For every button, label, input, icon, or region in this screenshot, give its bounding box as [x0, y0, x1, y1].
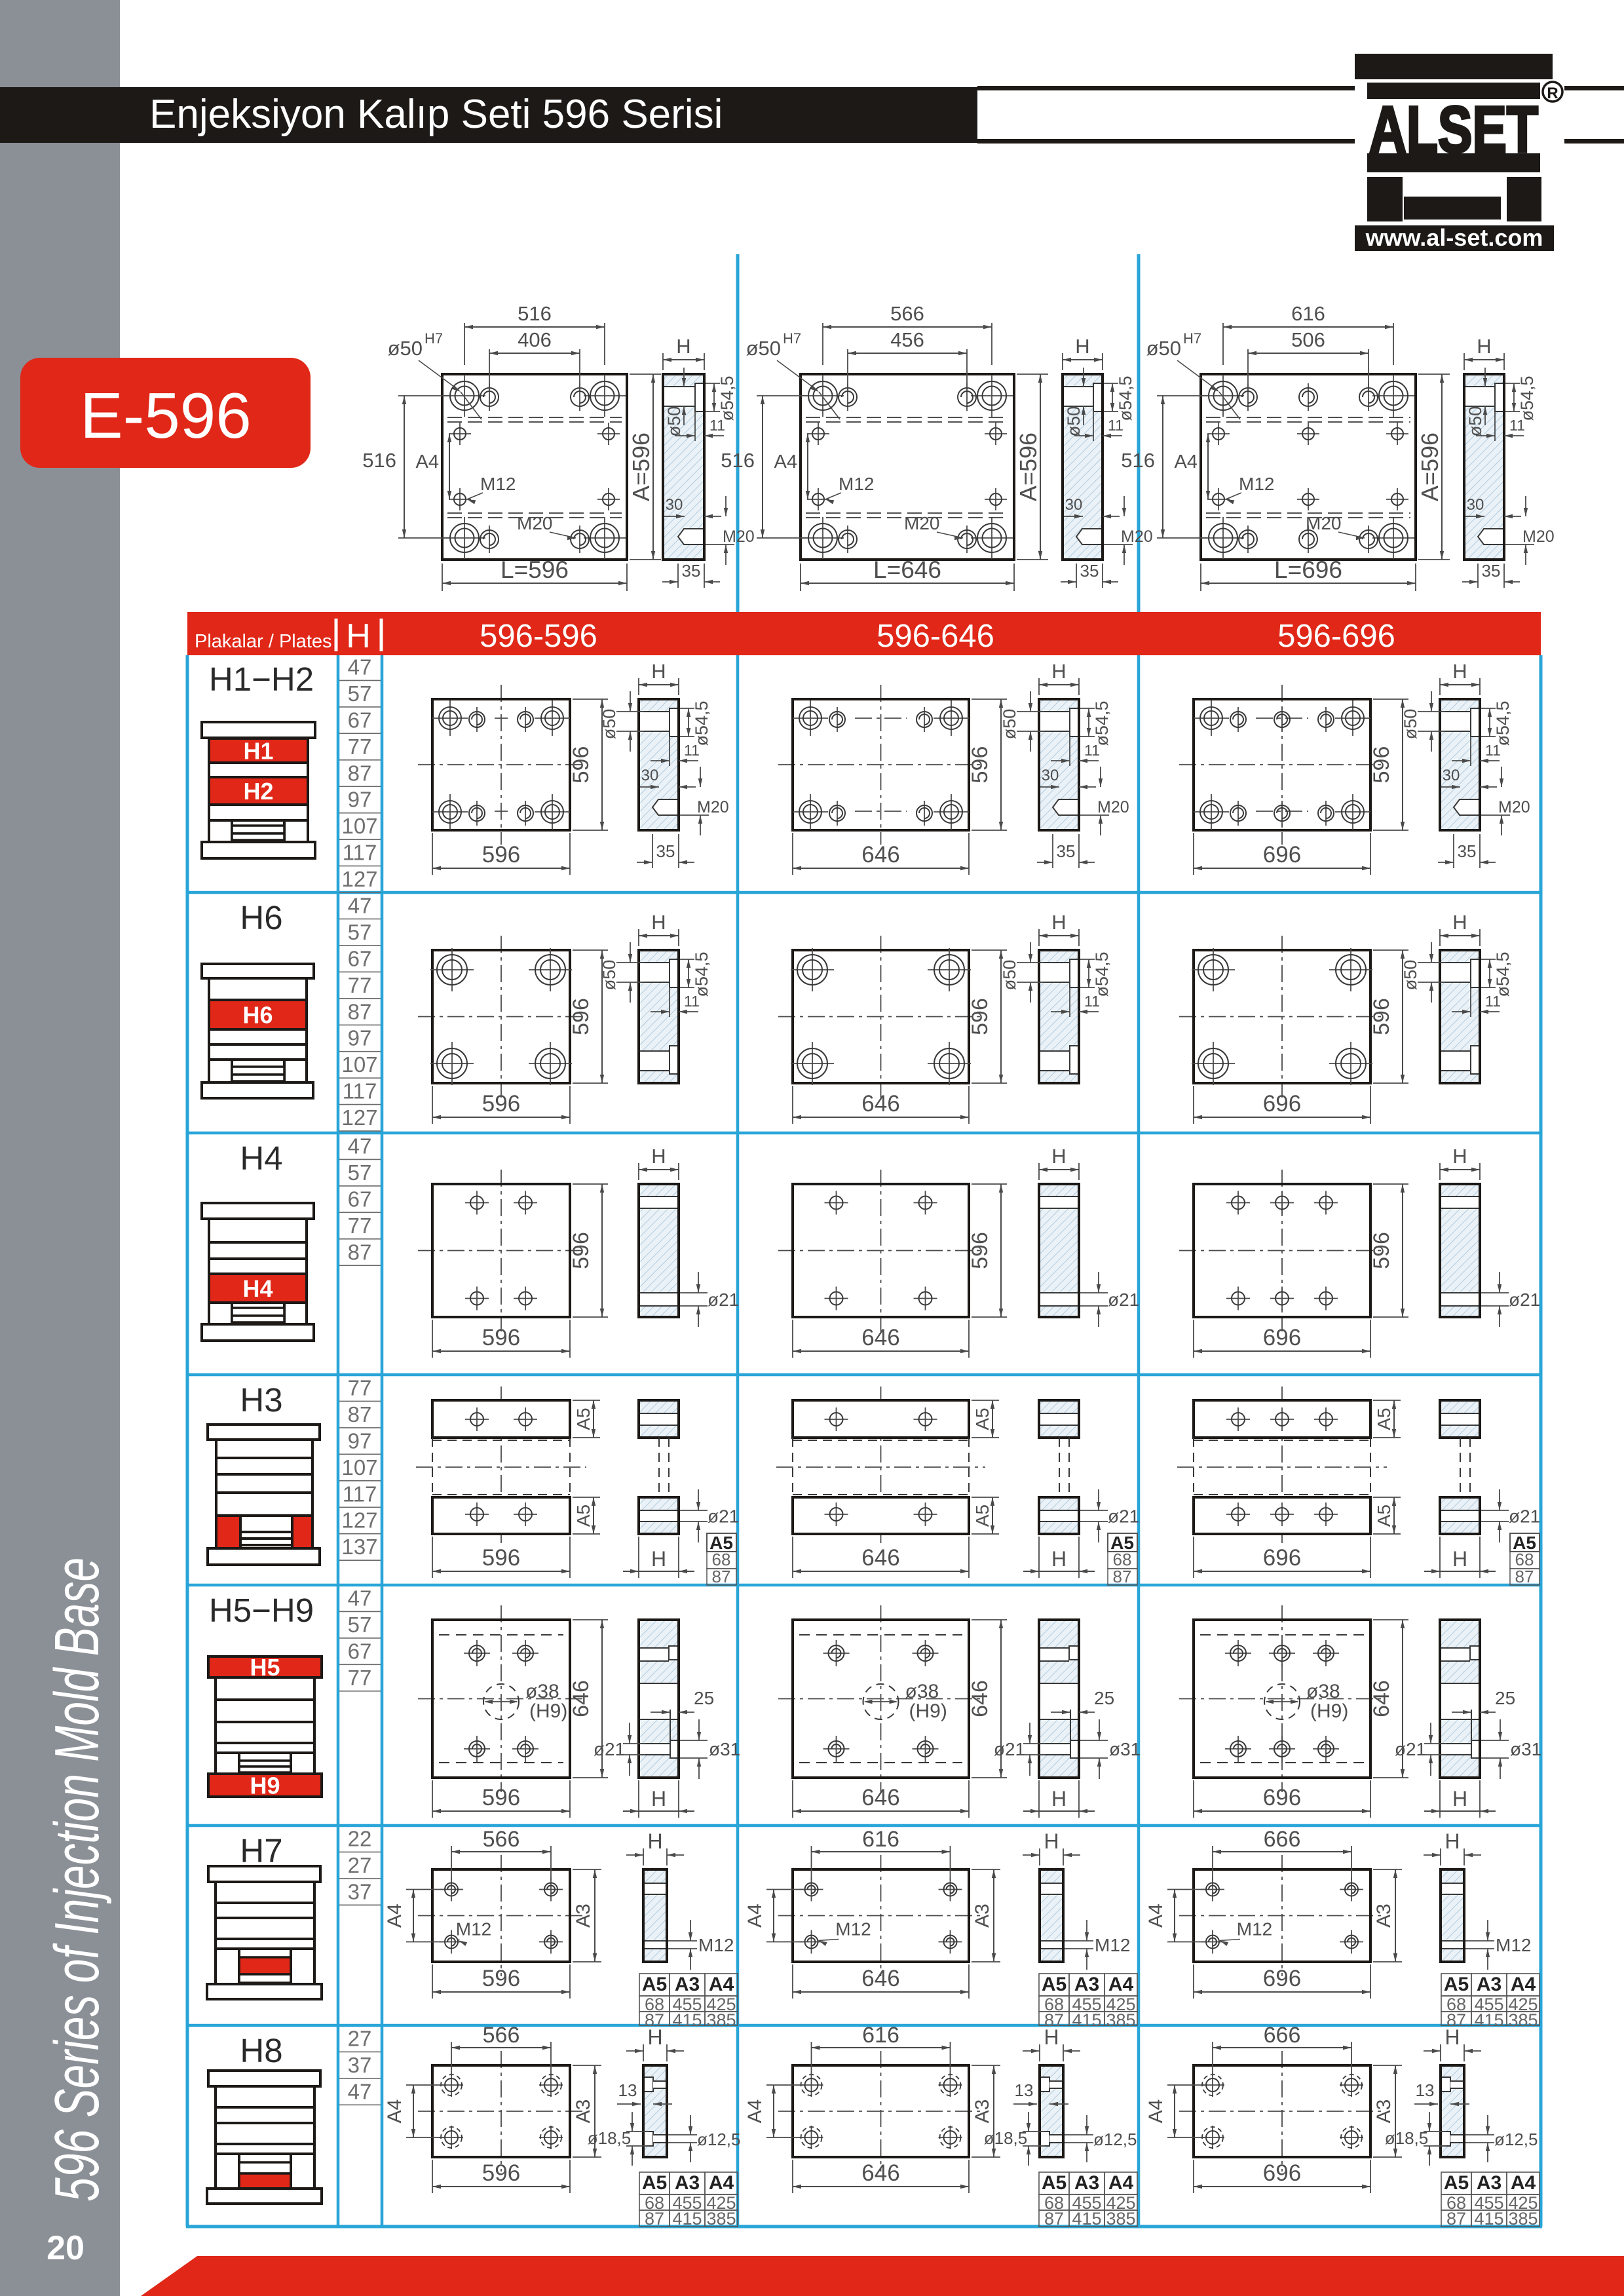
svg-text:M20: M20	[904, 513, 939, 533]
svg-text:M20: M20	[1306, 513, 1341, 533]
svg-text:H: H	[1452, 1787, 1467, 1810]
svg-text:ø18,5: ø18,5	[588, 2128, 632, 2148]
svg-text:646: 646	[861, 1091, 899, 1117]
svg-text:ø18,5: ø18,5	[984, 2128, 1028, 2148]
svg-text:H: H	[346, 617, 371, 655]
svg-text:97: 97	[348, 788, 372, 812]
svg-text:A5: A5	[1444, 2172, 1469, 2194]
svg-text:117: 117	[343, 1482, 377, 1506]
svg-text:ø21: ø21	[708, 1506, 739, 1527]
svg-text:415: 415	[1474, 2010, 1503, 2030]
svg-text:87: 87	[348, 1402, 372, 1426]
svg-text:77: 77	[348, 1375, 372, 1400]
svg-text:646: 646	[861, 2160, 899, 2186]
svg-text:47: 47	[348, 1134, 372, 1158]
svg-text:A5: A5	[972, 1407, 992, 1430]
svg-text:107: 107	[341, 1052, 377, 1077]
svg-text:596-696: 596-696	[1277, 619, 1395, 654]
svg-text:47: 47	[348, 2079, 372, 2103]
svg-text:ø21: ø21	[594, 1739, 625, 1759]
svg-text:596-596: 596-596	[480, 619, 597, 654]
svg-text:H: H	[647, 1829, 662, 1853]
svg-text:37: 37	[348, 1879, 372, 1904]
svg-text:506: 506	[1291, 328, 1325, 351]
svg-text:ø50: ø50	[1000, 960, 1019, 991]
svg-text:35: 35	[1482, 561, 1501, 581]
svg-text:H4: H4	[242, 1275, 273, 1302]
svg-text:M12: M12	[1496, 1935, 1531, 1955]
svg-text:A3: A3	[573, 2099, 594, 2124]
svg-text:ø50: ø50	[1401, 960, 1420, 991]
svg-text:H3: H3	[240, 1381, 282, 1419]
svg-text:11: 11	[1108, 417, 1124, 434]
svg-text:Plakalar / Plates: Plakalar / Plates	[195, 631, 332, 652]
svg-text:47: 47	[348, 1586, 372, 1610]
svg-text:ø38: ø38	[905, 1681, 939, 1702]
svg-text:25: 25	[1094, 1688, 1114, 1708]
svg-text:ø31: ø31	[1109, 1739, 1141, 1759]
svg-text:ø31: ø31	[709, 1739, 740, 1759]
svg-text:ø50: ø50	[1000, 709, 1019, 740]
svg-text:696: 696	[1263, 2160, 1301, 2186]
svg-text:ø50: ø50	[746, 337, 781, 360]
svg-text:67: 67	[348, 708, 372, 732]
svg-text:H: H	[1044, 1829, 1059, 1853]
svg-text:35: 35	[1458, 841, 1477, 861]
svg-text:596: 596	[569, 998, 594, 1035]
svg-text:566: 566	[483, 2023, 520, 2048]
svg-text:646: 646	[861, 842, 899, 868]
svg-text:A4: A4	[416, 451, 439, 472]
svg-text:ø54,5: ø54,5	[717, 375, 737, 421]
svg-text:H: H	[1477, 335, 1491, 358]
svg-text:A3: A3	[1074, 2172, 1099, 2194]
svg-text:516: 516	[1121, 449, 1155, 472]
svg-text:L=596: L=596	[500, 556, 569, 583]
svg-text:596: 596	[1369, 998, 1394, 1035]
svg-text:A3: A3	[1373, 2099, 1395, 2124]
svg-text:107: 107	[341, 1455, 377, 1480]
svg-text:57: 57	[348, 1160, 372, 1185]
svg-text:30: 30	[1042, 767, 1059, 784]
svg-text:Enjeksiyon Kalıp Seti 596 Seri: Enjeksiyon Kalıp Seti 596 Serisi	[149, 92, 723, 137]
svg-text:A4: A4	[774, 451, 797, 472]
svg-text:596: 596	[482, 842, 520, 868]
svg-text:A5: A5	[1374, 1407, 1394, 1430]
svg-text:596: 596	[1369, 746, 1394, 784]
svg-text:ø50: ø50	[388, 337, 423, 360]
svg-text:97: 97	[348, 1428, 372, 1453]
svg-text:385: 385	[706, 2010, 736, 2030]
svg-text:ø21: ø21	[1509, 1506, 1540, 1527]
svg-text:696: 696	[1263, 842, 1301, 868]
svg-text:57: 57	[348, 681, 372, 706]
svg-text:596: 596	[569, 746, 594, 784]
svg-text:M12: M12	[698, 1935, 734, 1955]
svg-text:H: H	[1051, 911, 1066, 934]
svg-text:H: H	[651, 1145, 666, 1168]
svg-text:35: 35	[682, 561, 701, 581]
svg-text:H: H	[1075, 335, 1089, 358]
svg-text:ø54,5: ø54,5	[1493, 700, 1513, 746]
svg-text:A4: A4	[709, 1974, 734, 1995]
svg-text:M12: M12	[1239, 474, 1274, 494]
svg-text:77: 77	[348, 973, 372, 997]
svg-text:456: 456	[890, 328, 924, 351]
svg-text:596: 596	[482, 2160, 520, 2186]
svg-text:ø21: ø21	[1108, 1290, 1139, 1310]
svg-text:M12: M12	[835, 1919, 871, 1940]
svg-text:ø54,5: ø54,5	[692, 700, 711, 746]
svg-text:A4: A4	[1145, 1904, 1167, 1928]
svg-text:E-596: E-596	[80, 379, 252, 451]
svg-text:415: 415	[1072, 2209, 1101, 2229]
svg-text:H6: H6	[242, 1002, 273, 1029]
svg-text:ø21: ø21	[1108, 1506, 1139, 1527]
svg-text:666: 666	[1264, 2023, 1301, 2048]
svg-text:ø54,5: ø54,5	[1493, 951, 1513, 997]
svg-text:A4: A4	[709, 2172, 734, 2194]
svg-text:ø54,5: ø54,5	[692, 951, 711, 997]
svg-text:ø12,5: ø12,5	[1494, 2130, 1538, 2149]
svg-text:H: H	[651, 1547, 666, 1571]
svg-text:M20: M20	[1498, 798, 1530, 816]
svg-text:415: 415	[1474, 2209, 1503, 2229]
svg-text:M12: M12	[1237, 1919, 1272, 1940]
svg-text:646: 646	[861, 1545, 899, 1571]
svg-text:A3: A3	[972, 1904, 993, 1928]
svg-text:A5: A5	[972, 1504, 992, 1527]
svg-text:415: 415	[672, 2209, 702, 2229]
svg-text:13: 13	[1416, 2080, 1435, 2100]
svg-text:H: H	[1051, 1145, 1066, 1168]
svg-text:37: 37	[348, 2053, 372, 2077]
svg-text:H8: H8	[240, 2032, 282, 2069]
svg-text:666: 666	[1264, 1827, 1301, 1852]
svg-text:117: 117	[343, 841, 377, 865]
svg-text:(H9): (H9)	[1310, 1700, 1348, 1722]
svg-text:H7: H7	[240, 1832, 282, 1869]
svg-text:A5: A5	[1042, 2172, 1067, 2194]
svg-text:L=696: L=696	[1274, 556, 1342, 583]
svg-text:ø54,5: ø54,5	[1092, 700, 1112, 746]
svg-text:A4: A4	[744, 2099, 766, 2124]
svg-text:47: 47	[348, 893, 372, 917]
svg-text:30: 30	[1467, 496, 1484, 514]
svg-text:H2: H2	[243, 778, 273, 805]
svg-text:87: 87	[1113, 1567, 1132, 1586]
svg-text:77: 77	[348, 735, 372, 759]
svg-text:A5: A5	[1042, 1974, 1067, 1995]
svg-text:H: H	[1051, 1787, 1067, 1810]
svg-text:107: 107	[341, 814, 377, 838]
svg-text:H7: H7	[783, 330, 801, 347]
svg-text:H: H	[651, 660, 666, 683]
svg-text:H: H	[651, 1787, 666, 1810]
svg-text:ø54,5: ø54,5	[1116, 375, 1135, 421]
svg-text:A4: A4	[1108, 2172, 1134, 2194]
svg-text:67: 67	[348, 946, 372, 970]
svg-text:A4: A4	[744, 1904, 766, 1928]
svg-text:ø50: ø50	[599, 960, 619, 991]
svg-text:385: 385	[1508, 2010, 1538, 2030]
svg-text:11: 11	[1084, 742, 1100, 759]
svg-text:35: 35	[1080, 561, 1099, 581]
svg-text:385: 385	[1106, 2209, 1135, 2229]
svg-text:127: 127	[341, 867, 377, 891]
svg-text:A5: A5	[1374, 1504, 1394, 1527]
svg-text:87: 87	[348, 761, 372, 785]
svg-text:406: 406	[518, 328, 552, 351]
svg-text:M12: M12	[1095, 1935, 1130, 1955]
svg-text:596: 596	[482, 1785, 520, 1810]
svg-text:H7: H7	[1183, 330, 1201, 347]
svg-text:M20: M20	[723, 527, 755, 546]
svg-text:30: 30	[666, 496, 683, 514]
svg-text:A4: A4	[384, 1904, 406, 1928]
svg-text:25: 25	[1495, 1688, 1515, 1708]
svg-text:596: 596	[482, 1545, 520, 1571]
svg-text:596: 596	[482, 1325, 520, 1350]
svg-text:A4: A4	[1145, 2099, 1167, 2124]
svg-text:11: 11	[684, 993, 700, 1010]
svg-text:L=646: L=646	[873, 556, 941, 583]
svg-text:H: H	[1445, 2025, 1460, 2049]
svg-text:30: 30	[641, 767, 659, 784]
svg-text:385: 385	[1508, 2209, 1538, 2229]
svg-text:ø12,5: ø12,5	[697, 2130, 741, 2149]
svg-text:87: 87	[645, 2209, 664, 2229]
svg-text:646: 646	[1369, 1680, 1394, 1717]
svg-text:ø38: ø38	[1306, 1681, 1340, 1702]
svg-text:127: 127	[341, 1508, 377, 1533]
svg-text:H6: H6	[240, 899, 282, 936]
svg-text:415: 415	[1072, 2010, 1101, 2030]
svg-text:H4: H4	[240, 1139, 282, 1177]
svg-text:ø21: ø21	[994, 1739, 1025, 1759]
svg-text:H1−H2: H1−H2	[209, 660, 314, 698]
svg-text:H: H	[1051, 1547, 1067, 1571]
svg-text:H: H	[1051, 660, 1066, 683]
svg-text:87: 87	[712, 1567, 731, 1586]
svg-text:www.al-set.com: www.al-set.com	[1365, 224, 1543, 251]
svg-text:ø50: ø50	[1064, 406, 1084, 437]
svg-text:H: H	[1044, 2025, 1059, 2049]
svg-text:ø50: ø50	[599, 709, 619, 740]
svg-text:A5: A5	[1444, 1974, 1469, 1995]
svg-text:M12: M12	[480, 474, 516, 494]
svg-text:596: 596	[968, 998, 992, 1035]
svg-text:ø21: ø21	[1509, 1290, 1540, 1310]
svg-text:11: 11	[1084, 993, 1100, 1010]
svg-text:M20: M20	[1097, 798, 1129, 816]
svg-text:516: 516	[721, 449, 755, 472]
svg-text:646: 646	[968, 1680, 992, 1717]
svg-text:(H9): (H9)	[909, 1700, 947, 1722]
svg-text:A3: A3	[675, 2172, 700, 2194]
svg-text:516: 516	[362, 449, 396, 472]
svg-text:ø12,5: ø12,5	[1093, 2130, 1137, 2149]
svg-text:11: 11	[1509, 417, 1525, 434]
svg-text:H9: H9	[250, 1772, 280, 1799]
svg-text:H5−H9: H5−H9	[209, 1592, 314, 1629]
svg-text:ø50: ø50	[1146, 337, 1181, 360]
svg-text:57: 57	[348, 1613, 372, 1637]
svg-text:M20: M20	[1121, 527, 1153, 546]
svg-text:H7: H7	[425, 330, 443, 347]
svg-text:A5: A5	[642, 1974, 667, 1995]
svg-text:A3: A3	[972, 2099, 993, 2124]
svg-text:696: 696	[1263, 1966, 1301, 1991]
svg-text:H: H	[1452, 1547, 1467, 1571]
svg-text:566: 566	[890, 302, 924, 325]
svg-text:97: 97	[348, 1026, 372, 1050]
svg-text:596-646: 596-646	[877, 619, 994, 654]
svg-text:30: 30	[1065, 496, 1083, 514]
svg-text:A5: A5	[642, 2172, 667, 2194]
svg-text:696: 696	[1263, 1325, 1301, 1350]
svg-text:27: 27	[348, 1853, 372, 1877]
svg-text:11: 11	[1485, 742, 1501, 759]
svg-text:646: 646	[861, 1966, 899, 1991]
svg-text:596 Series of Injection Mold B: 596 Series of Injection Mold Base	[43, 1558, 112, 2202]
svg-text:646: 646	[861, 1325, 899, 1350]
svg-text:87: 87	[1515, 1567, 1534, 1586]
svg-text:25: 25	[694, 1688, 714, 1708]
svg-text:11: 11	[684, 742, 700, 759]
svg-text:A3: A3	[1074, 1974, 1099, 1995]
svg-text:696: 696	[1263, 1091, 1301, 1117]
svg-text:M20: M20	[1522, 527, 1555, 546]
svg-text:35: 35	[656, 841, 675, 861]
svg-text:596: 596	[1369, 1232, 1394, 1269]
svg-text:646: 646	[569, 1680, 594, 1717]
svg-text:H: H	[651, 911, 666, 934]
svg-text:11: 11	[709, 417, 725, 434]
svg-text:646: 646	[861, 1785, 899, 1810]
svg-text:A5: A5	[573, 1504, 594, 1527]
svg-text:13: 13	[1015, 2080, 1034, 2100]
svg-text:57: 57	[348, 920, 372, 944]
svg-text:87: 87	[1446, 2209, 1466, 2229]
svg-text:596: 596	[968, 1232, 992, 1269]
svg-text:77: 77	[348, 1666, 372, 1690]
svg-text:596: 596	[569, 1232, 594, 1269]
svg-text:385: 385	[706, 2209, 736, 2229]
svg-text:ø50: ø50	[664, 406, 684, 437]
svg-text:616: 616	[862, 1827, 899, 1852]
svg-text:A4: A4	[384, 2099, 406, 2124]
svg-text:117: 117	[343, 1079, 377, 1103]
svg-text:M20: M20	[517, 513, 552, 533]
svg-text:20: 20	[47, 2229, 85, 2267]
svg-text:ø54,5: ø54,5	[1092, 951, 1112, 997]
svg-text:H: H	[1452, 1145, 1467, 1168]
svg-text:ø21: ø21	[1395, 1739, 1426, 1759]
svg-text:H: H	[647, 2025, 662, 2049]
svg-text:A=596: A=596	[1416, 432, 1443, 501]
svg-text:A4: A4	[1511, 2172, 1536, 2194]
svg-text:35: 35	[1057, 841, 1076, 861]
svg-text:87: 87	[1044, 2209, 1064, 2229]
svg-text:ø50: ø50	[1465, 406, 1485, 437]
svg-text:596: 596	[968, 746, 992, 784]
svg-text:87: 87	[348, 1240, 372, 1264]
svg-text:A4: A4	[1175, 451, 1198, 472]
svg-text:H: H	[1452, 911, 1467, 934]
svg-text:566: 566	[483, 1827, 520, 1852]
svg-text:R: R	[1547, 85, 1558, 102]
svg-text:A3: A3	[1373, 1904, 1395, 1928]
svg-text:47: 47	[348, 655, 372, 679]
svg-text:22: 22	[348, 1826, 372, 1850]
svg-text:385: 385	[1106, 2010, 1135, 2030]
svg-text:ø50: ø50	[1401, 709, 1420, 740]
svg-text:696: 696	[1263, 1785, 1301, 1810]
svg-text:A3: A3	[675, 1974, 700, 1995]
svg-text:67: 67	[348, 1187, 372, 1211]
svg-text:ø54,5: ø54,5	[1517, 375, 1537, 421]
svg-text:596: 596	[482, 1966, 520, 1991]
svg-text:A4: A4	[1511, 1974, 1536, 1995]
svg-text:415: 415	[672, 2010, 702, 2030]
svg-text:H: H	[1445, 1829, 1460, 1853]
svg-text:616: 616	[1291, 302, 1325, 325]
svg-text:H: H	[676, 335, 690, 358]
svg-text:11: 11	[1485, 993, 1501, 1010]
svg-text:A=596: A=596	[1015, 432, 1042, 501]
svg-text:ø38: ø38	[525, 1681, 559, 1702]
svg-text:A=596: A=596	[628, 432, 654, 501]
svg-text:13: 13	[618, 2080, 637, 2100]
svg-text:87: 87	[348, 999, 372, 1024]
svg-text:27: 27	[348, 2026, 372, 2050]
svg-text:(H9): (H9)	[529, 1700, 567, 1722]
svg-text:ø31: ø31	[1510, 1739, 1541, 1759]
svg-text:M20: M20	[697, 798, 729, 816]
svg-text:ø21: ø21	[708, 1290, 739, 1310]
svg-text:596: 596	[482, 1091, 520, 1117]
svg-text:30: 30	[1443, 767, 1460, 784]
svg-text:A3: A3	[573, 1904, 594, 1928]
svg-text:M12: M12	[839, 474, 874, 494]
svg-text:616: 616	[862, 2023, 899, 2048]
svg-text:516: 516	[518, 302, 552, 325]
svg-text:A4: A4	[1108, 1974, 1134, 1995]
svg-text:77: 77	[348, 1214, 372, 1238]
svg-text:137: 137	[341, 1535, 377, 1559]
svg-text:67: 67	[348, 1639, 372, 1663]
svg-text:M12: M12	[456, 1919, 491, 1940]
svg-text:H1: H1	[243, 738, 273, 765]
svg-text:A3: A3	[1477, 2172, 1501, 2194]
svg-text:696: 696	[1263, 1545, 1301, 1571]
svg-text:127: 127	[341, 1105, 377, 1130]
svg-text:A5: A5	[573, 1407, 594, 1430]
svg-text:A3: A3	[1477, 1974, 1501, 1995]
svg-text:ø18,5: ø18,5	[1385, 2128, 1429, 2148]
svg-text:H: H	[1452, 660, 1467, 683]
